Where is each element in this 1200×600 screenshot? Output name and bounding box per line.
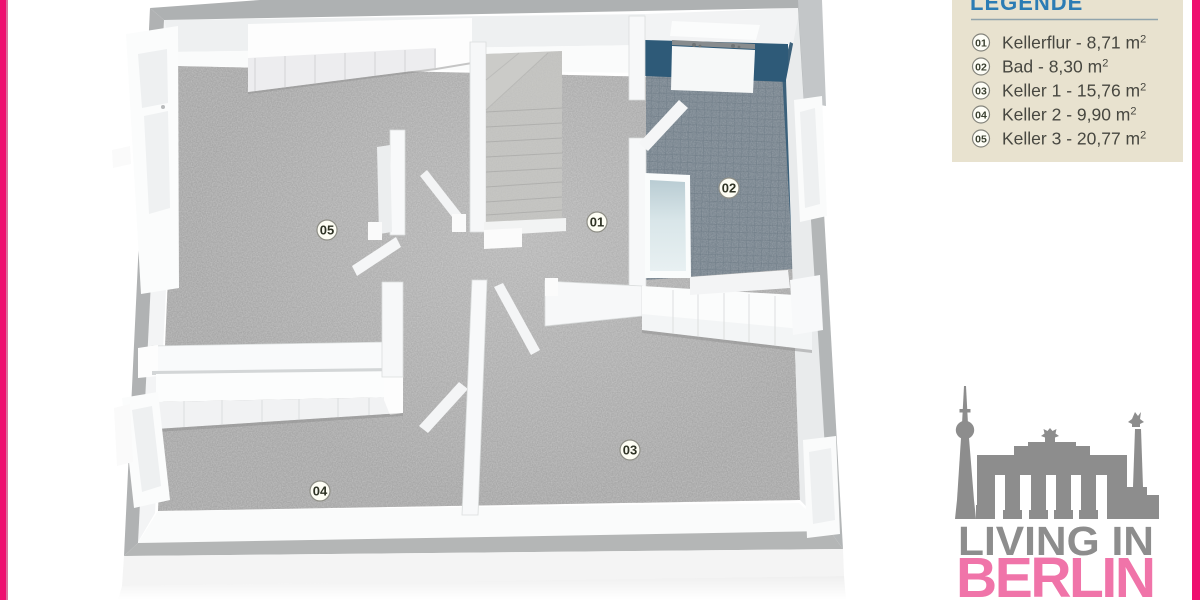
svg-text:Keller 1 - 15,76 m2: Keller 1 - 15,76 m2 xyxy=(1002,81,1146,101)
svg-text:03: 03 xyxy=(975,85,987,97)
svg-text:05: 05 xyxy=(320,223,334,238)
svg-text:04: 04 xyxy=(975,109,987,121)
svg-text:02: 02 xyxy=(722,181,736,196)
svg-text:Bad - 8,30 m2: Bad - 8,30 m2 xyxy=(1002,57,1108,77)
svg-text:01: 01 xyxy=(975,37,987,49)
svg-text:LEGENDE: LEGENDE xyxy=(970,0,1083,15)
svg-text:03: 03 xyxy=(623,443,637,458)
svg-text:Kellerflur - 8,71 m2: Kellerflur - 8,71 m2 xyxy=(1002,33,1146,53)
svg-text:BERLIN: BERLIN xyxy=(956,546,1156,600)
svg-text:Keller 3 - 20,77 m2: Keller 3 - 20,77 m2 xyxy=(1002,129,1146,149)
svg-text:05: 05 xyxy=(975,133,987,145)
svg-text:Keller 2 - 9,90 m2: Keller 2 - 9,90 m2 xyxy=(1002,105,1137,125)
svg-text:01: 01 xyxy=(590,215,604,230)
svg-text:02: 02 xyxy=(975,61,987,73)
svg-text:04: 04 xyxy=(313,484,328,499)
